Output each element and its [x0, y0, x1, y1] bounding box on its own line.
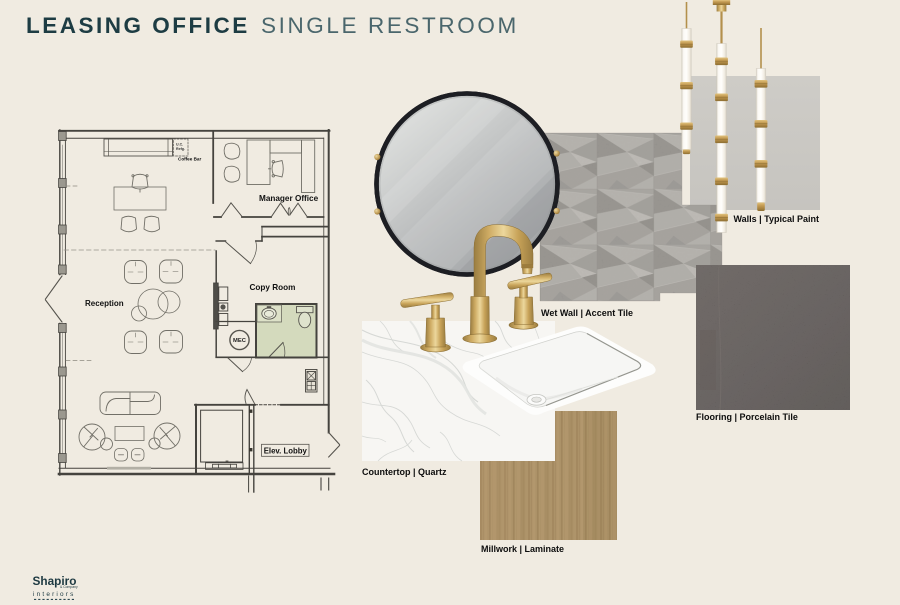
svg-text:MEC: MEC: [233, 338, 247, 344]
svg-text:interiors: interiors: [33, 591, 76, 598]
svg-text:Manager Office: Manager Office: [259, 194, 319, 203]
svg-text:Walls | Typical Paint: Walls | Typical Paint: [733, 214, 819, 224]
svg-text:Flooring | Porcelain Tile: Flooring | Porcelain Tile: [696, 412, 798, 422]
svg-text:Countertop | Quartz: Countertop | Quartz: [362, 467, 447, 477]
svg-text:Reception: Reception: [85, 299, 124, 308]
svg-text:& Company: & Company: [60, 585, 78, 589]
svg-text:Elev. Lobby: Elev. Lobby: [264, 446, 308, 455]
svg-text:Wet Wall | Accent Tile: Wet Wall | Accent Tile: [541, 308, 633, 318]
svg-text:U.C.: U.C.: [176, 143, 183, 147]
svg-text:SINGLE RESTROOM: SINGLE RESTROOM: [261, 13, 519, 38]
svg-text:Coffee Bar: Coffee Bar: [178, 157, 201, 162]
svg-text:LEASING OFFICE: LEASING OFFICE: [26, 13, 250, 38]
svg-text:Refg.: Refg.: [176, 147, 185, 151]
svg-text:Millwork | Laminate: Millwork | Laminate: [481, 544, 564, 554]
svg-text:Copy Room: Copy Room: [250, 283, 296, 292]
